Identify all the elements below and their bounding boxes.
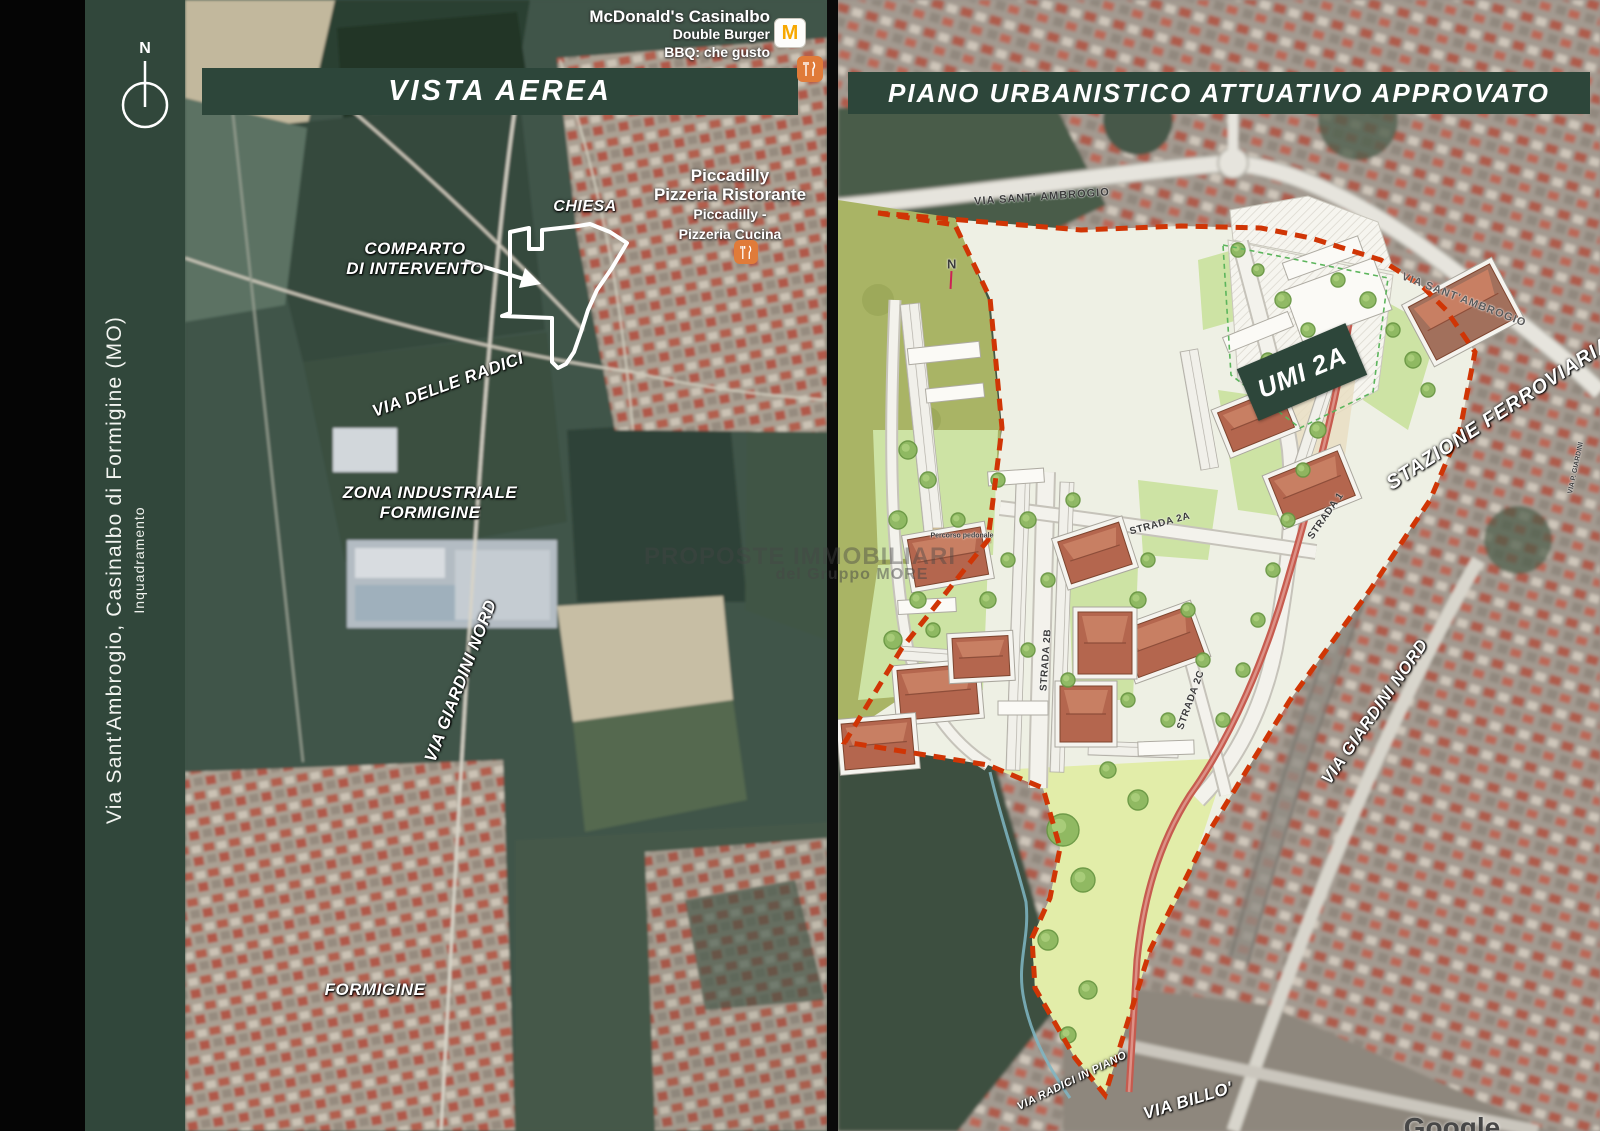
label-chiesa: CHIESA bbox=[553, 198, 616, 216]
poi-piccadilly-label: Piccadilly Pizzeria Ristorante Piccadill… bbox=[640, 166, 820, 244]
piccadilly-alt1: Piccadilly - bbox=[693, 206, 766, 222]
left-banner: VISTA AEREA bbox=[202, 68, 798, 115]
label-percorso-pedonale: Percorso pedonale bbox=[930, 533, 993, 540]
label-zona-formigine: FORMIGINE bbox=[380, 503, 481, 523]
fork-knife-glyph bbox=[740, 245, 753, 260]
poi-mcdonalds-label: McDonald's Casinalbo Double Burger BBQ: … bbox=[555, 8, 770, 61]
project-title: Via Sant'Ambrogio, Casinalbo di Formigin… bbox=[103, 316, 127, 824]
label-comparto-line1: COMPARTO bbox=[364, 239, 465, 259]
label-comparto-line2: DI INTERVENTO bbox=[346, 259, 483, 279]
piccadilly-line2: Pizzeria Ristorante bbox=[654, 185, 806, 204]
watermark-line2: del Gruppo MORE bbox=[776, 566, 929, 584]
mcdonalds-icon: M bbox=[774, 18, 806, 48]
north-compass-icon: N bbox=[100, 25, 170, 135]
mcdonalds-name: McDonald's Casinalbo bbox=[589, 7, 770, 26]
right-banner-label: PIANO URBANISTICO ATTUATIVO APPROVATO bbox=[888, 78, 1550, 109]
right-banner: PIANO URBANISTICO ATTUATIVO APPROVATO bbox=[848, 72, 1590, 114]
sidebar: N Via Sant'Ambrogio, Casinalbo di Formig… bbox=[85, 0, 185, 1131]
fork-knife-glyph bbox=[803, 61, 817, 77]
mcdonalds-line2: Double Burger bbox=[673, 26, 770, 42]
project-subtitle: Inquadramento bbox=[131, 506, 147, 613]
piccadilly-alt2: Pizzeria Cucina bbox=[679, 226, 782, 242]
piccadilly-name: Piccadilly bbox=[691, 166, 769, 185]
north-letter: N bbox=[139, 40, 151, 57]
brochure-page: N Via Sant'Ambrogio, Casinalbo di Formig… bbox=[0, 0, 1600, 1131]
label-zona-industriale: ZONA INDUSTRIALE bbox=[343, 483, 518, 503]
restaurant-icon-edge bbox=[797, 56, 823, 82]
north-indicator-letter: N bbox=[947, 257, 957, 272]
restaurant-icon-piccadilly bbox=[734, 240, 758, 264]
left-black-strip bbox=[0, 0, 85, 1131]
left-banner-label: VISTA AEREA bbox=[388, 75, 612, 108]
map-credit: Google bbox=[1404, 1112, 1500, 1131]
mcdonalds-line3: BBQ: che gusto bbox=[664, 44, 770, 60]
label-formigine: FORMIGINE bbox=[325, 980, 426, 1000]
